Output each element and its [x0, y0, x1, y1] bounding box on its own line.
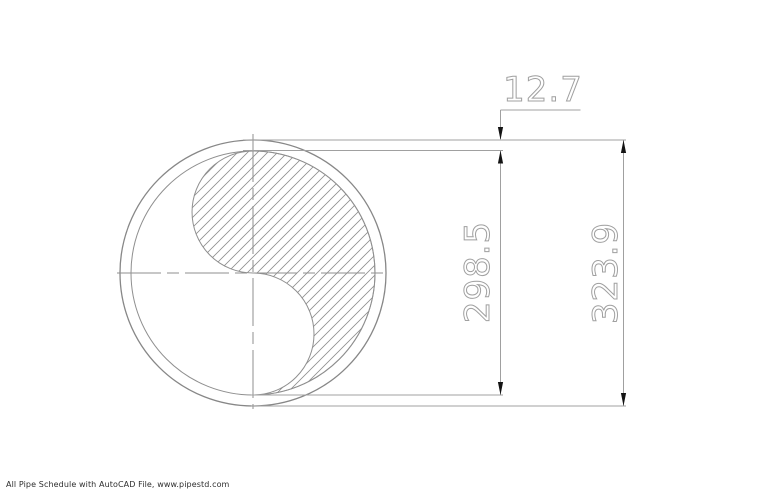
dimension-text-outer-diameter: 323.9: [586, 222, 626, 324]
arrowhead-wall-thickness-down: [498, 127, 503, 140]
dimension-text-wall-thickness: 12.7: [503, 70, 583, 110]
pipe-cross-section-drawing: 12.7 298.5 323.9: [0, 0, 768, 497]
arrowhead-outer-bottom-down: [621, 393, 626, 406]
cad-drawing-canvas: 12.7 298.5 323.9 All Pipe Schedule with …: [0, 0, 768, 497]
arrowhead-outer-top-up: [621, 140, 626, 153]
dimension-text-inner-diameter: 298.5: [458, 221, 498, 323]
arrowhead-inner-top-up: [498, 151, 503, 164]
arrowhead-inner-bottom-down: [498, 382, 503, 395]
footer-caption: All Pipe Schedule with AutoCAD File, www…: [6, 480, 229, 490]
